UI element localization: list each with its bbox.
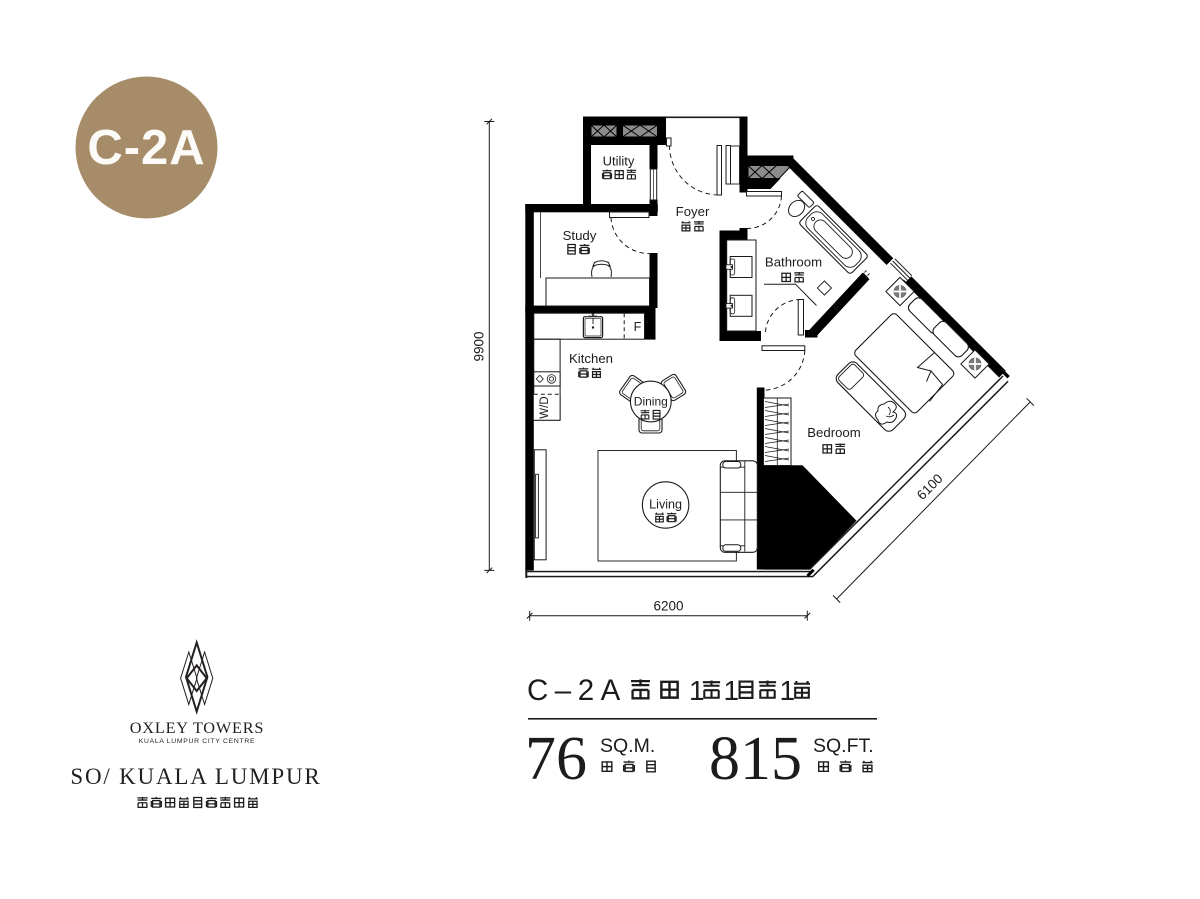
svg-text:KUALA LUMPUR CITY CENTRE: KUALA LUMPUR CITY CENTRE bbox=[139, 738, 255, 745]
svg-text:SQ.M.: SQ.M. bbox=[600, 735, 655, 757]
svg-text:W/D: W/D bbox=[539, 396, 551, 418]
svg-text:SO/ KUALA LUMPUR: SO/ KUALA LUMPUR bbox=[70, 764, 321, 789]
svg-text:Foyer: Foyer bbox=[676, 204, 710, 219]
svg-text:76: 76 bbox=[525, 725, 587, 793]
svg-text:Bathroom: Bathroom bbox=[765, 255, 822, 270]
svg-text:C–2A: C–2A bbox=[527, 674, 627, 707]
svg-text:SQ.FT.: SQ.FT. bbox=[813, 735, 874, 757]
svg-text:F: F bbox=[634, 320, 642, 334]
svg-text:1: 1 bbox=[780, 675, 796, 706]
svg-text:815: 815 bbox=[709, 725, 802, 793]
svg-text:Kitchen: Kitchen bbox=[569, 351, 613, 366]
svg-text:6200: 6200 bbox=[653, 599, 683, 614]
svg-text:Dining: Dining bbox=[634, 395, 668, 409]
svg-text:Bedroom: Bedroom bbox=[807, 425, 861, 440]
svg-text:C-2A: C-2A bbox=[87, 121, 205, 175]
svg-text:1: 1 bbox=[689, 675, 705, 706]
svg-text:9900: 9900 bbox=[472, 331, 487, 361]
svg-text:Living: Living bbox=[649, 498, 682, 512]
svg-text:Utility: Utility bbox=[603, 154, 635, 169]
svg-text:OXLEY TOWERS: OXLEY TOWERS bbox=[130, 718, 265, 737]
svg-text:1: 1 bbox=[724, 675, 740, 706]
svg-text:Study: Study bbox=[563, 228, 597, 243]
